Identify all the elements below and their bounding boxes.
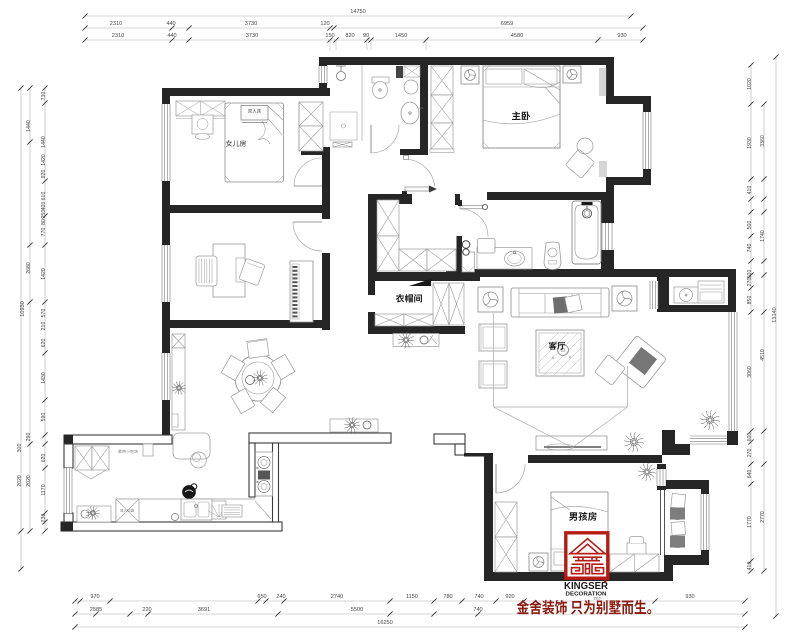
svg-text:620: 620 bbox=[41, 339, 47, 348]
svg-text:KINGSER: KINGSER bbox=[564, 580, 608, 592]
svg-text:600: 600 bbox=[747, 433, 753, 442]
svg-text:210: 210 bbox=[41, 322, 47, 331]
svg-text:410: 410 bbox=[747, 562, 753, 571]
svg-text:250: 250 bbox=[41, 210, 47, 219]
svg-text:440: 440 bbox=[167, 33, 176, 39]
svg-text:150: 150 bbox=[325, 33, 334, 39]
svg-text:120: 120 bbox=[320, 21, 329, 27]
svg-text:930: 930 bbox=[617, 33, 626, 39]
svg-text:2585: 2585 bbox=[90, 607, 102, 613]
svg-text:3510: 3510 bbox=[593, 597, 600, 601]
svg-text:2680: 2680 bbox=[26, 262, 32, 274]
svg-text:5500: 5500 bbox=[351, 607, 363, 613]
svg-text:2020: 2020 bbox=[26, 475, 32, 487]
svg-text:400: 400 bbox=[41, 202, 47, 211]
svg-text:1430: 1430 bbox=[41, 372, 47, 384]
svg-text:270: 270 bbox=[747, 278, 753, 287]
svg-text:2310: 2310 bbox=[112, 33, 124, 39]
svg-text:220: 220 bbox=[142, 607, 151, 613]
svg-text:780: 780 bbox=[443, 594, 452, 600]
svg-text:500: 500 bbox=[747, 221, 753, 230]
svg-text:970: 970 bbox=[90, 594, 99, 600]
svg-text:3060: 3060 bbox=[747, 366, 753, 378]
svg-text:930: 930 bbox=[685, 594, 694, 600]
svg-text:290: 290 bbox=[26, 433, 32, 442]
svg-text:1440: 1440 bbox=[41, 136, 47, 148]
svg-text:1930: 1930 bbox=[747, 137, 753, 149]
svg-text:90: 90 bbox=[363, 33, 369, 39]
svg-text:3730: 3730 bbox=[245, 21, 257, 27]
svg-text:820: 820 bbox=[345, 33, 354, 39]
svg-text:1150: 1150 bbox=[406, 594, 418, 600]
svg-text:300: 300 bbox=[17, 444, 23, 453]
svg-text:1740: 1740 bbox=[760, 230, 766, 242]
svg-text:740: 740 bbox=[747, 244, 753, 253]
svg-text:850: 850 bbox=[747, 296, 753, 305]
svg-text:16250: 16250 bbox=[377, 620, 393, 626]
svg-text:570: 570 bbox=[41, 309, 47, 318]
svg-text:1020: 1020 bbox=[747, 78, 753, 90]
svg-text:920: 920 bbox=[41, 170, 47, 179]
svg-text:440: 440 bbox=[166, 21, 175, 27]
svg-text:1450: 1450 bbox=[395, 33, 407, 39]
svg-text:2740: 2740 bbox=[331, 594, 343, 600]
svg-text:13140: 13140 bbox=[772, 307, 778, 323]
svg-text:590: 590 bbox=[41, 413, 47, 422]
svg-text:740: 740 bbox=[474, 594, 483, 600]
svg-text:1440: 1440 bbox=[26, 120, 32, 132]
svg-text:1170: 1170 bbox=[41, 484, 47, 495]
svg-text:14750: 14750 bbox=[350, 9, 366, 15]
svg-text:6959: 6959 bbox=[501, 21, 513, 27]
svg-text:4580: 4580 bbox=[511, 33, 523, 39]
svg-text:610: 610 bbox=[41, 192, 47, 201]
svg-text:3691: 3691 bbox=[198, 607, 210, 613]
svg-text:240: 240 bbox=[276, 594, 285, 600]
svg-text:620: 620 bbox=[41, 454, 47, 463]
svg-text:10930: 10930 bbox=[20, 301, 26, 317]
svg-text:1420: 1420 bbox=[41, 154, 47, 166]
svg-text:4510: 4510 bbox=[760, 349, 766, 361]
svg-text:3730: 3730 bbox=[246, 33, 258, 39]
svg-text:2020: 2020 bbox=[17, 475, 23, 487]
svg-text:650: 650 bbox=[257, 594, 266, 600]
svg-text:230: 230 bbox=[41, 514, 47, 523]
svg-text:740: 740 bbox=[473, 607, 482, 613]
svg-text:920: 920 bbox=[505, 594, 514, 600]
svg-text:3360: 3360 bbox=[760, 135, 766, 147]
svg-text:1420: 1420 bbox=[41, 268, 47, 280]
svg-text:770: 770 bbox=[41, 228, 47, 237]
svg-text:80: 80 bbox=[41, 219, 47, 225]
svg-text:500: 500 bbox=[747, 270, 753, 279]
svg-text:730: 730 bbox=[41, 92, 47, 101]
svg-text:410: 410 bbox=[747, 186, 753, 195]
svg-text:270: 270 bbox=[747, 449, 753, 458]
svg-text:640: 640 bbox=[747, 470, 753, 479]
svg-text:1770: 1770 bbox=[747, 516, 753, 528]
svg-text:2770: 2770 bbox=[760, 511, 766, 523]
svg-text:2310: 2310 bbox=[110, 21, 122, 27]
